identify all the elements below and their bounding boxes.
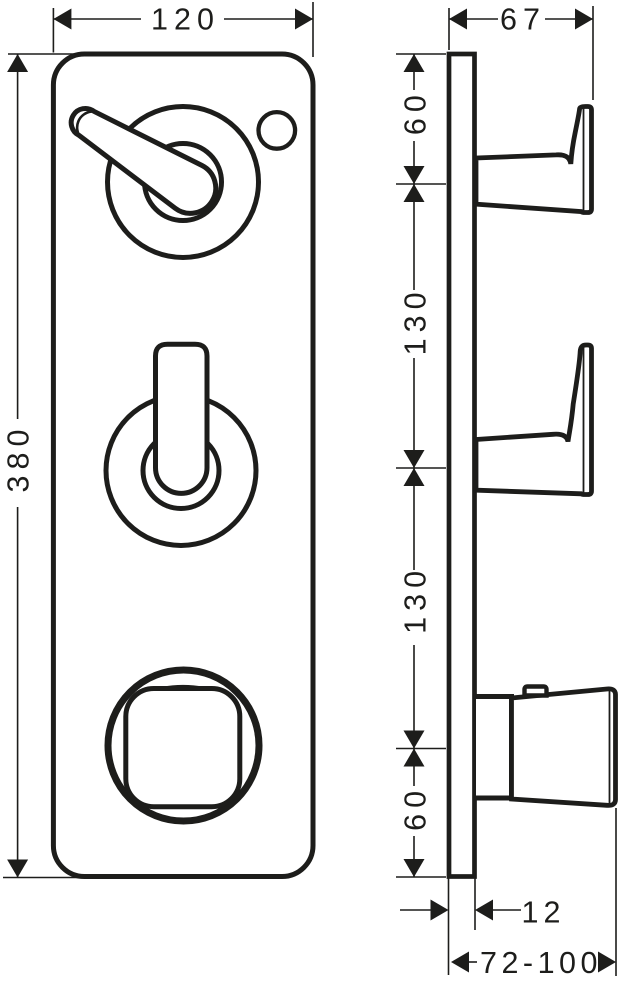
svg-text:130: 130 <box>398 565 432 634</box>
svg-text:130: 130 <box>398 286 432 355</box>
svg-text:67: 67 <box>500 3 546 37</box>
svg-text:120: 120 <box>151 3 220 37</box>
svg-text:60: 60 <box>398 785 432 831</box>
svg-text:380: 380 <box>2 424 36 493</box>
svg-text:60: 60 <box>398 89 432 135</box>
svg-text:12: 12 <box>522 896 566 930</box>
svg-text:72-100: 72-100 <box>480 946 602 980</box>
